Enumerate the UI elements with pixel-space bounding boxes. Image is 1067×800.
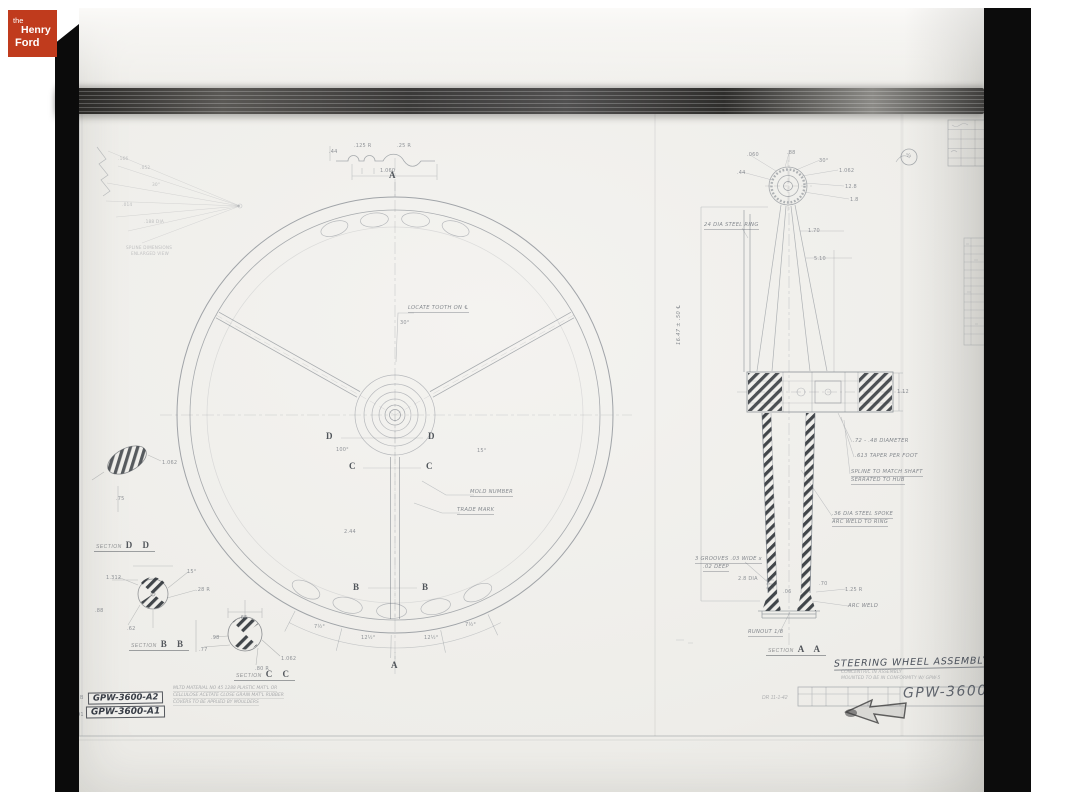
henry-ford-logo: the Henry Ford <box>8 10 57 57</box>
photograph-of-blueprint: .166.05230°.014.188 DIASPLINE DIMENSIONS… <box>0 0 1067 800</box>
film-shadow-band <box>55 88 984 114</box>
logo-text-henry: Henry <box>21 25 51 36</box>
logo-text-ford: Ford <box>15 38 39 49</box>
film-edge-right <box>984 8 1031 792</box>
film-edge-left <box>55 24 79 792</box>
drawing-paper <box>79 8 984 792</box>
